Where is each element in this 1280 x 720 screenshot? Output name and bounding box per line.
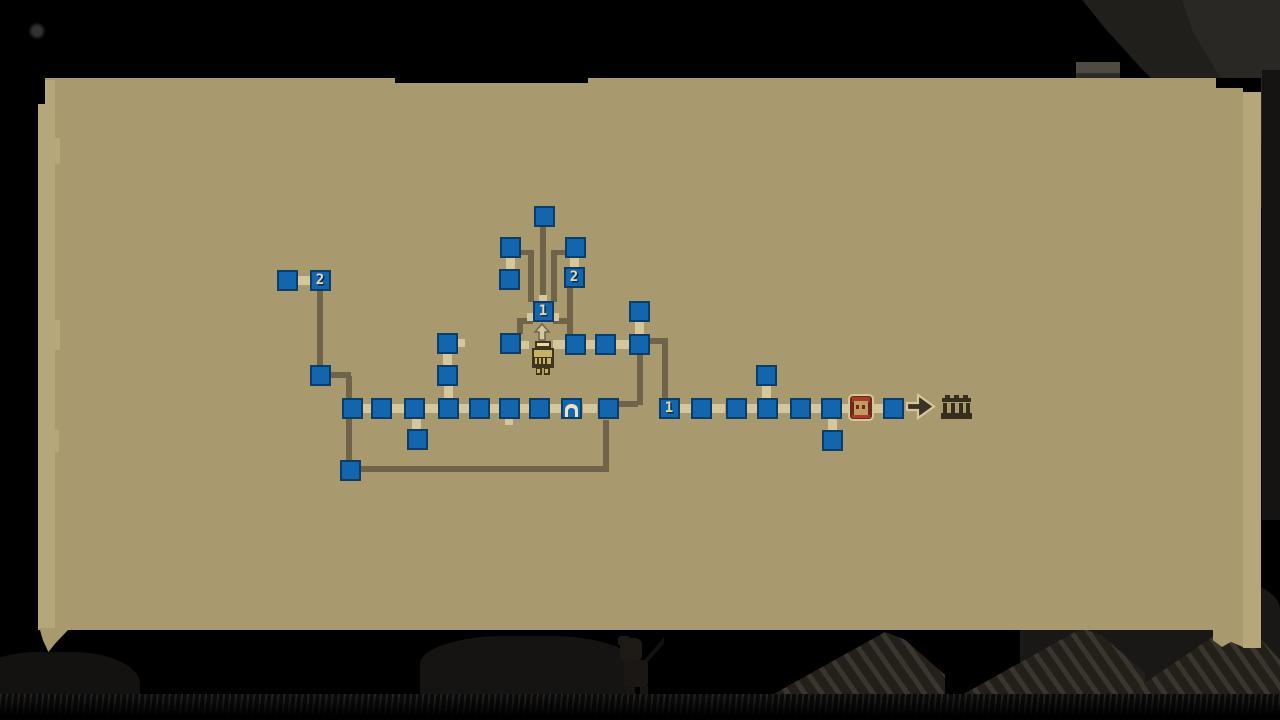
map-corridor-path — [603, 420, 609, 472]
map-corridor-path — [354, 466, 609, 472]
map-room-node — [561, 398, 582, 419]
map-room-node — [437, 365, 458, 386]
map-room-node — [629, 334, 650, 355]
map-room-node — [821, 398, 842, 419]
room-count-label: 1 — [539, 304, 547, 318]
map-room-node — [691, 398, 712, 419]
map-room-node: 1 — [659, 398, 680, 419]
map-room-node — [529, 398, 550, 419]
map-corridor-path — [637, 355, 643, 405]
golden-idol-icon — [529, 341, 557, 375]
gate-icon — [941, 395, 972, 420]
map-room-node: 1 — [533, 301, 554, 322]
map-room-node — [407, 429, 428, 450]
map-room-node — [757, 398, 778, 419]
exit-arrow-icon — [905, 392, 936, 421]
map-door-connector — [444, 384, 453, 398]
map-corridor-path — [528, 255, 534, 302]
map-room-node — [277, 270, 298, 291]
map-room-node — [790, 398, 811, 419]
map-door-connector — [711, 404, 725, 413]
map-room-node — [404, 398, 425, 419]
entrance-door-icon — [565, 404, 578, 417]
room-count-label: 2 — [316, 273, 324, 287]
map-room-node: 2 — [564, 267, 585, 288]
map-room-node — [565, 334, 586, 355]
map-room-node — [340, 460, 361, 481]
map-corridor-path — [618, 401, 638, 407]
map-door-connector — [615, 340, 629, 349]
map-room-node — [438, 398, 459, 419]
map-room-node — [822, 430, 843, 451]
map-room-node — [437, 333, 458, 354]
map-room-node — [342, 398, 363, 419]
map-door-stub — [521, 341, 529, 349]
map-corridor-path — [551, 255, 557, 302]
game-screen[interactable]: 2121 — [0, 0, 1280, 720]
map-room-node — [598, 398, 619, 419]
room-count-label: 1 — [665, 401, 673, 415]
map-room-node — [756, 365, 777, 386]
map-room-node — [595, 334, 616, 355]
map-corridor-path — [567, 288, 573, 334]
mine-map: 2121 — [0, 0, 1280, 720]
ascend-arrow-icon — [533, 323, 551, 341]
map-room-node — [726, 398, 747, 419]
map-room-node: 2 — [310, 270, 331, 291]
map-room-node — [310, 365, 331, 386]
map-room-node — [469, 398, 490, 419]
map-room-node — [500, 237, 521, 258]
map-room-node — [883, 398, 904, 419]
map-corridor-path — [540, 227, 546, 303]
map-room-node — [499, 398, 520, 419]
map-room-node — [500, 333, 521, 354]
room-count-label: 2 — [570, 270, 578, 284]
map-corridor-path — [662, 338, 668, 398]
map-room-node — [534, 206, 555, 227]
map-room-node — [629, 301, 650, 322]
map-room-node — [371, 398, 392, 419]
map-room-node — [565, 237, 586, 258]
map-room-node — [499, 269, 520, 290]
map-door-connector — [762, 384, 771, 398]
map-door-stub — [457, 339, 465, 347]
map-door-connector — [424, 404, 438, 413]
peasant-portrait-icon — [848, 394, 874, 421]
map-corridor-path — [317, 291, 323, 368]
map-door-connector — [583, 404, 597, 413]
map-corridor-path — [346, 376, 352, 462]
